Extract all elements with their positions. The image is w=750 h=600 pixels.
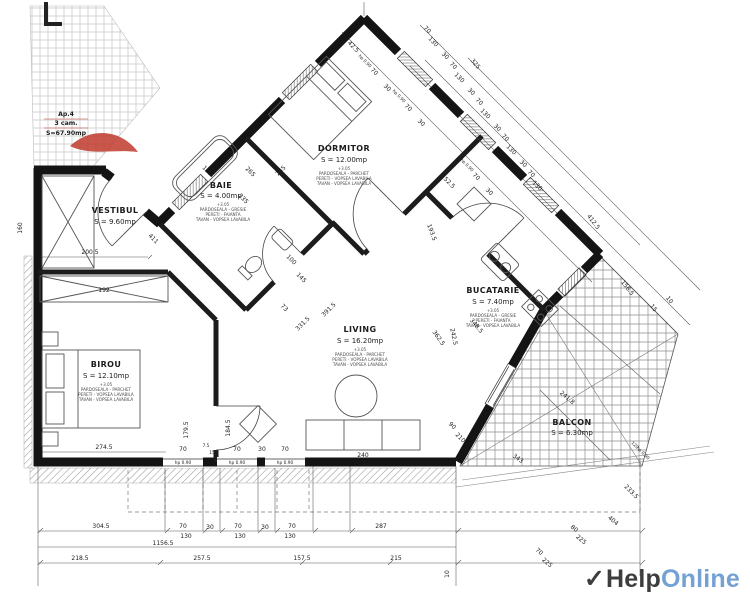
dim-label: 287 [375,523,387,530]
dim-label: 70 [179,446,187,453]
dim-label: 304.5 [92,523,109,530]
dim-label: 145 [295,271,308,284]
room-area: S = 16.20mp [337,337,384,345]
stamp-line: 3 cam. [54,120,77,127]
dim-label: hp 0.90 [357,53,373,69]
table-living [335,375,377,417]
stamp-line: Ap.4 [58,111,75,118]
room-area: S = 12.00mp [321,156,368,164]
dim-label: 157.5 [293,555,310,562]
interior-walls [38,136,544,462]
dim-label: 70 [234,523,242,530]
dim-label: 70 [534,547,544,557]
dim-label: 52.5 [442,176,457,191]
dim-label: 130 [479,107,492,120]
dim-label: 90 [447,421,457,431]
stamp-line: S=67.90mp [46,130,87,137]
dim-label: hp 0.90 [459,157,475,173]
room-vestibul: VESTIBUL S = 9.60mp [92,206,139,226]
dim-label: 240 [357,452,369,459]
dim-label: 225 [574,533,587,546]
dim-label: 70 [474,97,484,107]
room-birou: BIROU S = 12.10mp +3.05 PARDOSEALA - PAR… [78,360,134,402]
room-area: S = 12.10mp [83,372,130,380]
dim-label: 70 [233,446,241,453]
floor-plan-drawing: VESTIBUL S = 9.60mp BAIE S = 4.00mp +3.0… [0,0,750,600]
room-name: VESTIBUL [92,206,139,215]
dim-label: 70 [448,61,458,71]
kitchen-sink [480,242,520,282]
footing-hatch [30,468,456,483]
dim-label: 130 [234,533,246,540]
dim-label: 233.5 [623,483,640,500]
dim-label: 42.5 [346,40,361,55]
dim-label: 100 [285,253,298,266]
dim-label: 192 [98,287,110,294]
dim-label: hp 0.90 [175,460,192,466]
dim-label: 184.5 [225,419,232,436]
dim-label: 193.5 [425,223,438,242]
dim-label: 30 [258,446,266,453]
dim-label: 362.5 [430,329,446,347]
room-area: S = 7.40mp [472,298,514,306]
room-name: BIROU [91,360,122,369]
room-name: DORMITOR [318,144,370,153]
room-area: S = 6.30mp [551,429,593,437]
dim-label: 70 [179,523,187,530]
logo-text-dark: Help [606,565,661,594]
dim-label: 70 [403,103,413,113]
room-area: S = 9.60mp [94,218,136,226]
dim-label: 70 [281,446,289,453]
dim-label: 391.5 [320,301,337,318]
dim-label: 160 [17,222,24,234]
dim-label: 242.5 [448,328,458,346]
dim-label: 70 [500,133,510,143]
dim-label: 10 [664,295,674,305]
dim-label: 15 [209,450,215,456]
room-note: TAVAN - VOPSEA LAVABILA [316,181,372,186]
dim-label: 30 [416,118,426,128]
room-name: LIVING [344,325,377,334]
dim-label: 130 [427,35,440,48]
dim-label: 257.5 [193,555,210,562]
left-wall-hatch [24,256,32,468]
dim-label: 215 [390,555,402,562]
dim-label: 218.5 [71,555,88,562]
dim-label: 274.5 [95,444,112,451]
room-dormitor: DORMITOR S = 12.00mp +3.05 PARDOSEALA - … [316,144,372,186]
room-living: LIVING S = 16.20mp +3.05 PARDOSEALA - PA… [332,325,388,367]
dim-label: 30 [492,123,502,133]
room-area: S = 4.00mp [200,192,242,200]
dim-label: hp 0.90 [229,460,246,466]
dim-label: 331.5 [294,315,311,332]
dim-label: 10 [444,570,451,578]
armchair [240,406,277,443]
dim-label: 70 [288,523,296,530]
dim-label: 130 [180,533,192,540]
dim-label: 265 [244,165,257,178]
toilet [238,253,265,280]
dim-label: 80 [569,524,579,534]
sofa-living [306,420,420,450]
dim-label: 1156.5 [153,540,174,547]
logo-text-light: Online [661,565,740,594]
dim-label: 7.5 [203,443,210,449]
dim-label: hp 0.90 [277,460,294,466]
dim-label: 235 [237,192,250,205]
checkmark-icon: ✓ [584,564,605,594]
dim-label: 225 [540,556,553,569]
floor-plan-page: VESTIBUL S = 9.60mp BAIE S = 4.00mp +3.0… [0,0,750,600]
dim-label: 70 [526,169,536,179]
dim-label: 179.5 [183,421,190,438]
dim-label: 30 [206,524,214,531]
dim-label: 70 [422,25,432,35]
sink-baie [271,228,294,251]
helponline-logo[interactable]: ✓ Help Online [584,564,740,594]
room-note: TAVAN - VOPSEA LAVABILA [78,397,134,402]
dim-label: 411 [147,232,160,245]
dim-label: 30 [484,187,494,197]
dim-label: 30 [466,87,476,97]
room-note: TAVAN - VOPSEA LAVABILA [332,362,388,367]
dim-label: 325 [469,57,482,70]
dim-label: 404 [606,514,619,527]
dim-label: 73 [279,303,289,313]
room-name: BUCATARIE [466,286,519,295]
dim-label: hp 0.90 [391,88,407,104]
dim-label: 200.5 [81,249,98,256]
dim-label: 30 [440,51,450,61]
dim-label: 30 [261,524,269,531]
room-note: TAVAN - VOPSEA LAVABILA [195,217,251,222]
dim-label: 130 [453,71,466,84]
room-name: BAIE [210,181,232,190]
dim-label: 70 [471,172,481,182]
room-name: BALCON [552,418,591,427]
dim-label: 70 [369,67,379,77]
dim-label: 130 [284,533,296,540]
